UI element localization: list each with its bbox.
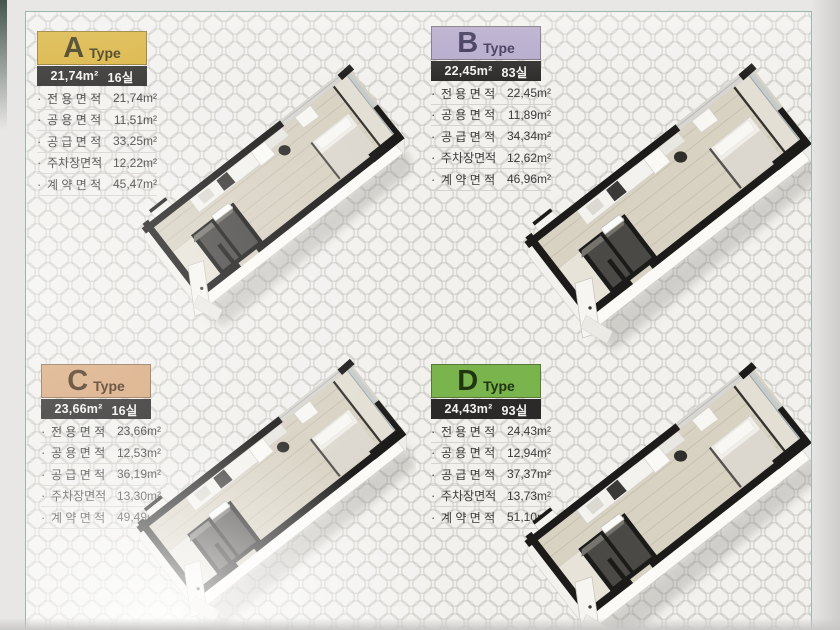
spec-label: 공 용 면 적 <box>441 106 495 123</box>
spec-label: 공 급 면 적 <box>441 466 495 483</box>
photo-right-shadow <box>810 0 840 630</box>
spec-label: 주차장면적 <box>441 149 496 166</box>
summary-area: 23,66m² <box>55 402 103 416</box>
bullet-icon: · <box>431 108 441 121</box>
bullet-icon: · <box>41 446 51 459</box>
type-letter: C <box>67 369 88 394</box>
bullet-icon: · <box>431 151 441 164</box>
summary-area: 21,74m² <box>51 69 99 83</box>
bullet-icon: · <box>431 425 441 438</box>
spec-label: 계 약 면 적 <box>51 509 105 526</box>
summary-area: 24,43m² <box>445 402 493 416</box>
spec-label: 공 급 면 적 <box>441 128 495 145</box>
spec-label: 공 용 면 적 <box>51 444 105 461</box>
spec-label: 주차장면적 <box>441 487 496 504</box>
floorplan-3d-a <box>112 58 414 334</box>
bullet-icon: · <box>41 468 51 481</box>
bullet-icon: · <box>41 489 51 502</box>
bullet-icon: · <box>37 135 47 148</box>
spec-label: 공 급 면 적 <box>51 466 105 483</box>
summary-area: 22,45m² <box>445 64 493 78</box>
type-word: Type <box>483 41 515 55</box>
bullet-icon: · <box>431 173 441 186</box>
floorplan-3d-d <box>492 355 812 630</box>
brochure-photo: A Type 21,74m² 16실 · 전 용 면 적 21,74m² · 공… <box>0 0 840 630</box>
spec-label: 공 급 면 적 <box>47 133 101 150</box>
type-letter: B <box>457 31 478 56</box>
bullet-icon: · <box>431 468 441 481</box>
page-corner-shadow <box>0 0 7 130</box>
bullet-icon: · <box>431 130 441 143</box>
bullet-icon: · <box>37 92 47 105</box>
spec-label: 계 약 면 적 <box>441 171 495 188</box>
spec-label: 전 용 면 적 <box>51 423 105 440</box>
brochure-page: A Type 21,74m² 16실 · 전 용 면 적 21,74m² · 공… <box>25 11 812 630</box>
spec-label: 공 용 면 적 <box>441 444 495 461</box>
photo-bottom-shadow <box>0 618 840 630</box>
bullet-icon: · <box>37 113 47 126</box>
spec-label: 주차장면적 <box>47 154 102 171</box>
spec-label: 공 용 면 적 <box>47 111 101 128</box>
spec-label: 주차장면적 <box>51 487 106 504</box>
bullet-icon: · <box>431 87 441 100</box>
spec-label: 전 용 면 적 <box>441 85 495 102</box>
floorplan-3d-c <box>106 352 416 630</box>
spec-label: 전 용 면 적 <box>47 90 101 107</box>
bullet-icon: · <box>37 156 47 169</box>
spec-label: 계 약 면 적 <box>47 176 101 193</box>
bullet-icon: · <box>41 511 51 524</box>
spec-label: 전 용 면 적 <box>441 423 495 440</box>
spec-label: 계 약 면 적 <box>441 509 495 526</box>
bullet-icon: · <box>431 446 441 459</box>
bullet-icon: · <box>431 489 441 502</box>
bullet-icon: · <box>431 511 441 524</box>
type-letter: D <box>457 369 478 394</box>
type-letter: A <box>63 36 84 61</box>
floorplan-3d-b <box>492 56 812 358</box>
bullet-icon: · <box>41 425 51 438</box>
type-header-b: B Type <box>431 26 541 60</box>
bullet-icon: · <box>37 178 47 191</box>
